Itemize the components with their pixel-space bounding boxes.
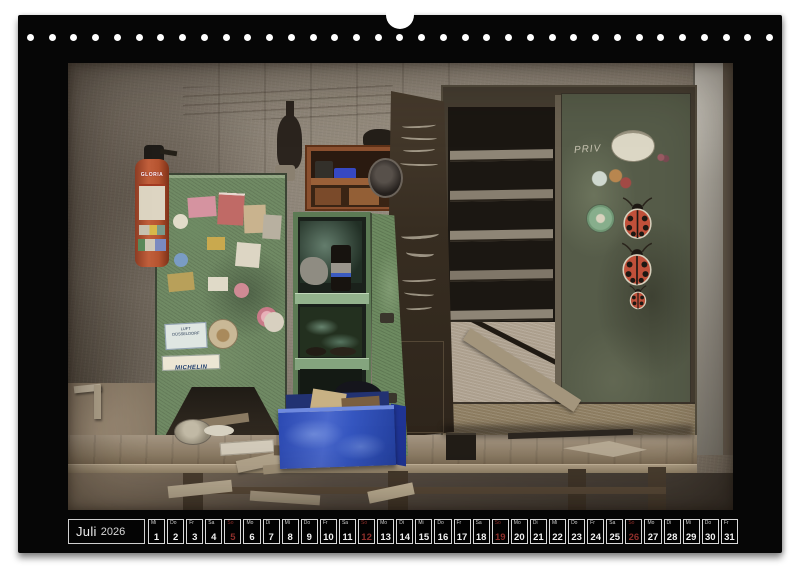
weekday-abbr: Mi xyxy=(686,521,691,526)
binding-hole xyxy=(92,34,99,41)
day-cell: Mi8 xyxy=(282,519,299,544)
day-cell: Mo6 xyxy=(243,519,260,544)
weekday-abbr: Mi xyxy=(552,521,557,526)
day-cell: Mo27 xyxy=(644,519,661,544)
day-cell: So12 xyxy=(358,519,375,544)
binding-hole xyxy=(244,34,251,41)
day-cell: Do9 xyxy=(301,519,318,544)
ladybug-sticker xyxy=(619,241,655,288)
day-cell: Di28 xyxy=(664,519,681,544)
binding-hole xyxy=(549,34,556,41)
binding-hole xyxy=(657,34,664,41)
binding-hole xyxy=(570,34,577,41)
binding-hole xyxy=(49,34,56,41)
ladybug-sticker xyxy=(620,196,655,241)
chalk-priv-text: PRIV xyxy=(574,143,602,156)
binding-hole xyxy=(527,34,534,41)
binding-hole xyxy=(614,34,621,41)
bottle-neck xyxy=(286,101,294,121)
day-cell: So26 xyxy=(625,519,642,544)
day-cell: Do2 xyxy=(167,519,184,544)
sticker xyxy=(235,242,261,268)
calendar-page: PRIV xyxy=(0,0,800,577)
oval-sticker xyxy=(611,130,655,162)
day-cell: Sa11 xyxy=(339,519,356,544)
weekday-abbr: Mi xyxy=(418,521,423,526)
day-number: 3 xyxy=(187,533,202,543)
day-number: 25 xyxy=(607,533,622,543)
day-number: 19 xyxy=(493,533,508,543)
binding-hole xyxy=(440,34,447,41)
day-number: 16 xyxy=(435,533,450,543)
metal-post xyxy=(693,63,725,455)
day-cell: Fr10 xyxy=(320,519,337,544)
sticker-round xyxy=(173,214,188,229)
weekday-abbr: Fr xyxy=(189,521,194,526)
day-cell: Di21 xyxy=(530,519,547,544)
weekday-abbr: Fr xyxy=(724,521,729,526)
binding-hole xyxy=(179,34,186,41)
day-number: 12 xyxy=(359,533,374,543)
day-number: 20 xyxy=(512,533,527,543)
binding-hole xyxy=(701,34,708,41)
weekday-abbr: Fr xyxy=(457,521,462,526)
weekday-abbr: Mi xyxy=(151,521,156,526)
chalk-scribble xyxy=(403,146,435,152)
binding-hole xyxy=(483,34,490,41)
year: 2026 xyxy=(101,526,125,538)
extinguisher-sticker-row xyxy=(138,239,166,251)
binding-hole xyxy=(157,34,164,41)
shelf-edge xyxy=(295,293,369,304)
binding-hole xyxy=(766,34,773,41)
small-sticker-cluster xyxy=(588,166,634,194)
day-number: 7 xyxy=(264,533,279,543)
weekday-abbr: Mi xyxy=(285,521,290,526)
round-tin xyxy=(368,158,403,198)
weekday-abbr: Sa xyxy=(208,521,214,526)
day-cell: Mi15 xyxy=(415,519,432,544)
door-latch xyxy=(380,313,394,323)
michelin-text: MICHELIN xyxy=(175,364,207,371)
day-cell: Fr17 xyxy=(454,519,471,544)
round-figures-sticker xyxy=(208,319,238,349)
right-wall xyxy=(723,63,733,455)
day-number: 2 xyxy=(168,533,183,543)
binding-hole xyxy=(353,34,360,41)
luft-sticker: LUFT DÜSSELDORF xyxy=(164,322,207,350)
binding-hole xyxy=(331,34,338,41)
month-name: Juli xyxy=(76,524,97,539)
calendar-sheet: PRIV xyxy=(18,15,782,553)
day-number: 17 xyxy=(455,533,470,543)
extinguisher-sticker-row xyxy=(139,225,165,235)
day-number: 18 xyxy=(474,533,489,543)
day-cell: Do23 xyxy=(568,519,585,544)
chalk-scribble xyxy=(401,134,437,140)
weekday-abbr: Di xyxy=(667,521,672,526)
chalk-scribble xyxy=(406,304,432,310)
day-cell: Do30 xyxy=(702,519,719,544)
day-number: 5 xyxy=(225,533,240,543)
day-cell: Mo20 xyxy=(511,519,528,544)
binding-hole xyxy=(462,34,469,41)
sticker-cabinet: LUFT DÜSSELDORF MICHELIN xyxy=(155,173,287,440)
jar-label xyxy=(331,263,351,277)
day-cell: Mi1 xyxy=(148,519,165,544)
round-green-sticker xyxy=(586,204,615,233)
day-number: 10 xyxy=(321,533,336,543)
day-number: 1 xyxy=(149,533,164,543)
cabinet-shelf-slat xyxy=(450,189,553,202)
weekday-abbr: Di xyxy=(399,521,404,526)
steel-cabinet: PRIV xyxy=(441,85,697,435)
cabinet-shelf-slat xyxy=(450,269,553,282)
day-number: 15 xyxy=(416,533,431,543)
day-number: 11 xyxy=(340,533,355,543)
sticker xyxy=(167,272,195,293)
day-number: 13 xyxy=(378,533,393,543)
day-cell: Mi22 xyxy=(549,519,566,544)
weekday-abbr: So xyxy=(628,521,634,526)
sticker xyxy=(187,196,216,218)
day-cell: Fr3 xyxy=(186,519,203,544)
cabinet-shelf-slat xyxy=(450,309,553,322)
white-disc xyxy=(204,425,234,436)
binding-hole xyxy=(396,34,403,41)
day-number: 27 xyxy=(645,533,660,543)
binding-hole xyxy=(27,34,34,41)
binding-hole xyxy=(136,34,143,41)
fire-extinguisher-body: GLORIA xyxy=(135,159,169,267)
weekday-abbr: Fr xyxy=(323,521,328,526)
binding-hole xyxy=(288,34,295,41)
dried-flower xyxy=(656,152,670,164)
day-number: 28 xyxy=(665,533,680,543)
chalk-scribble xyxy=(402,276,436,282)
blue-crate-front xyxy=(278,405,396,469)
chalk-scribble xyxy=(400,161,438,167)
luft-sticker-line2: DÜSSELDORF xyxy=(166,331,206,338)
day-cells: Mi1Do2Fr3Sa4So5Mo6Di7Mi8Do9Fr10Sa11So12M… xyxy=(148,519,738,544)
binding-hole xyxy=(310,34,317,41)
binding-hole xyxy=(679,34,686,41)
wood-box xyxy=(315,188,341,205)
weekday-abbr: Di xyxy=(533,521,538,526)
weekday-abbr: Sa xyxy=(609,521,615,526)
binding-hole xyxy=(636,34,643,41)
day-cell: So19 xyxy=(492,519,509,544)
michelin-sticker: MICHELIN xyxy=(162,354,220,371)
chalk-scribble xyxy=(404,290,434,297)
month-label: Juli 2026 xyxy=(68,519,145,544)
weekday-abbr: Do xyxy=(705,521,711,526)
day-cell: Mo13 xyxy=(377,519,394,544)
weekday-abbr: Mo xyxy=(380,521,387,526)
shelf-tools xyxy=(301,345,361,358)
hanger-hole xyxy=(386,1,414,29)
binding-hole xyxy=(266,34,273,41)
day-cell: Di7 xyxy=(263,519,280,544)
weekday-abbr: So xyxy=(495,521,501,526)
day-number: 8 xyxy=(283,533,298,543)
sticker xyxy=(217,192,245,225)
binding-hole xyxy=(744,34,751,41)
day-number: 14 xyxy=(397,533,412,543)
cabinet-shelf-slat xyxy=(450,149,553,162)
sticker xyxy=(262,214,282,239)
gloria-label-text: GLORIA xyxy=(135,172,169,178)
sticker-round xyxy=(234,283,249,298)
weekday-abbr: So xyxy=(361,521,367,526)
day-number: 26 xyxy=(626,533,641,543)
photo-workshop-scene: PRIV xyxy=(68,63,733,510)
day-cell: Di14 xyxy=(396,519,413,544)
sticker xyxy=(208,277,228,291)
day-number: 31 xyxy=(722,533,737,543)
instruction-label xyxy=(139,184,165,220)
day-cell: Sa25 xyxy=(606,519,623,544)
wall-hook-arm xyxy=(94,385,101,419)
binding-hole xyxy=(375,34,382,41)
black-jar xyxy=(331,245,351,291)
weekday-abbr: Fr xyxy=(590,521,595,526)
weekday-abbr: Mo xyxy=(246,521,253,526)
day-cell: Fr24 xyxy=(587,519,604,544)
day-number: 9 xyxy=(302,533,317,543)
sticker-round xyxy=(174,253,188,267)
rag xyxy=(300,257,328,285)
day-cell: Fr31 xyxy=(721,519,738,544)
weekday-abbr: Do xyxy=(437,521,443,526)
binding-hole xyxy=(723,34,730,41)
weekday-abbr: Mo xyxy=(647,521,654,526)
binding-hole xyxy=(201,34,208,41)
weekday-abbr: Do xyxy=(170,521,176,526)
day-cell: So5 xyxy=(224,519,241,544)
day-number: 23 xyxy=(569,533,584,543)
chalk-scribble xyxy=(401,230,439,241)
weekday-abbr: Do xyxy=(304,521,310,526)
chalk-scribble xyxy=(406,248,434,257)
day-number: 21 xyxy=(531,533,546,543)
day-number: 22 xyxy=(550,533,565,543)
day-number: 6 xyxy=(244,533,259,543)
toolbox xyxy=(446,433,476,460)
weekday-abbr: Di xyxy=(266,521,271,526)
weekday-abbr: Do xyxy=(571,521,577,526)
binding-hole xyxy=(70,34,77,41)
weekday-abbr: Sa xyxy=(342,521,348,526)
sticker-round xyxy=(264,312,284,332)
ladybug-sticker-small xyxy=(628,285,648,310)
binding-hole xyxy=(592,34,599,41)
binding-hole xyxy=(418,34,425,41)
weekday-abbr: So xyxy=(227,521,233,526)
date-bar: Juli 2026 Mi1Do2Fr3Sa4So5Mo6Di7Mi8Do9Fr1… xyxy=(18,519,782,546)
weekday-abbr: Mo xyxy=(514,521,521,526)
chalk-scribble xyxy=(402,122,436,129)
spiral-binding xyxy=(27,33,773,41)
day-cell: Mi29 xyxy=(683,519,700,544)
sticker xyxy=(207,237,225,250)
day-cell: Do16 xyxy=(434,519,451,544)
dark-bottle xyxy=(277,115,302,169)
binding-hole xyxy=(223,34,230,41)
day-number: 24 xyxy=(588,533,603,543)
binding-hole xyxy=(505,34,512,41)
day-number: 4 xyxy=(206,533,221,543)
weekday-abbr: Sa xyxy=(476,521,482,526)
day-cell: Sa18 xyxy=(473,519,490,544)
binding-hole xyxy=(114,34,121,41)
day-number: 30 xyxy=(703,533,718,543)
cabinet-shelf-slat xyxy=(450,229,553,242)
day-number: 29 xyxy=(684,533,699,543)
day-cell: Sa4 xyxy=(205,519,222,544)
